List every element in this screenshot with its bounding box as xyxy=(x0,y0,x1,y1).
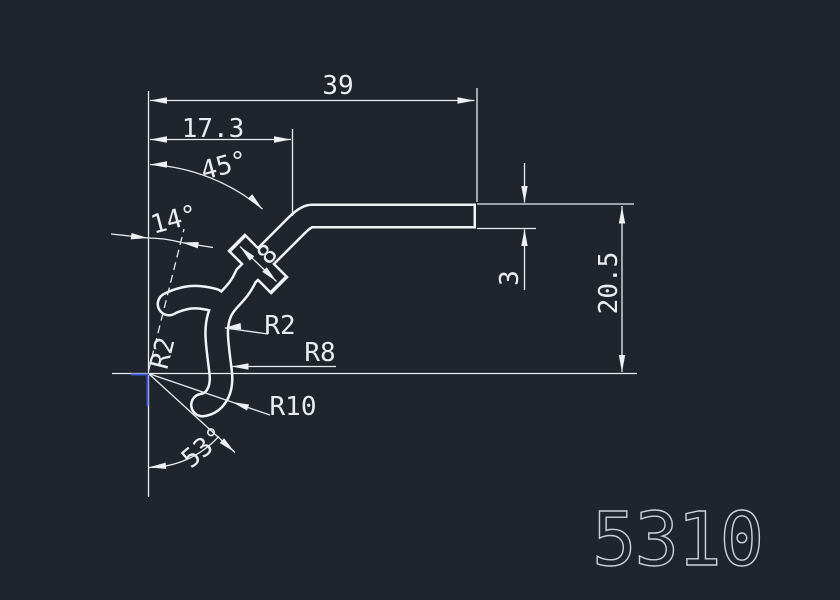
arc-lip-angle xyxy=(149,238,181,242)
arrowhead xyxy=(150,161,167,167)
dim-radius-inner-label: R2 xyxy=(264,311,295,341)
arrowhead xyxy=(521,229,527,246)
dim-overall-height-label: 20.5 xyxy=(594,252,624,315)
leader-radius-inner xyxy=(225,328,268,334)
arrowhead xyxy=(619,355,625,372)
dim-wall-thickness-label: 3 xyxy=(495,270,525,286)
arrowhead xyxy=(181,239,199,248)
part-number: 5310 xyxy=(592,497,762,583)
dim-lip-radius-label: R2 xyxy=(145,334,182,372)
profile-outline xyxy=(169,216,476,405)
drawing-canvas[interactable]: 39 17.3 45° 14° 53° 8 R2 R2 R8 R10 3 20.… xyxy=(0,0,840,600)
arrowhead xyxy=(149,463,166,471)
cad-viewport[interactable]: 39 17.3 45° 14° 53° 8 R2 R2 R8 R10 3 20.… xyxy=(0,0,840,600)
dim-top-angle-label: 45° xyxy=(198,145,251,186)
arrowhead xyxy=(274,136,291,142)
arrowhead xyxy=(458,97,475,103)
dim-radius-mid-label: R8 xyxy=(304,338,335,368)
dimension-labels: 39 17.3 45° 14° 53° 8 R2 R2 R8 R10 3 20.… xyxy=(145,71,624,474)
arrowhead xyxy=(150,136,167,142)
dim-bottom-angle-label: 53° xyxy=(176,421,231,474)
arrowhead xyxy=(231,399,249,411)
dim-radius-outer-label: R10 xyxy=(270,392,317,422)
arrowhead xyxy=(619,207,625,224)
arrowhead xyxy=(150,97,167,103)
arrowhead xyxy=(248,194,265,211)
dim-overall-width-label: 39 xyxy=(322,71,353,101)
arrowhead xyxy=(521,186,527,203)
dim-lip-angle-label: 14° xyxy=(148,199,201,240)
arrowhead xyxy=(232,363,249,369)
dim-upper-width-label: 17.3 xyxy=(182,114,245,144)
origin-crosshair xyxy=(131,375,149,407)
